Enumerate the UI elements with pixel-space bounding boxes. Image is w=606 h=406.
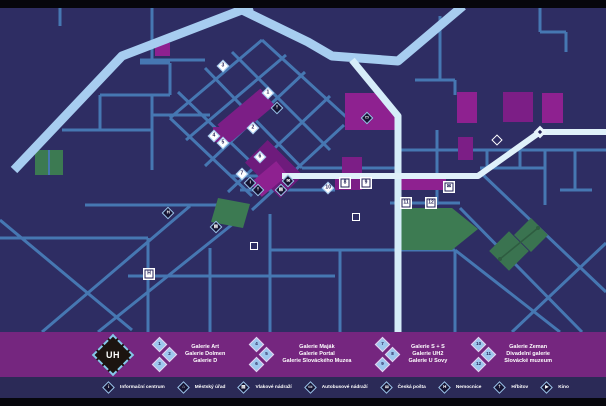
gallery-diamond-number: 5 xyxy=(266,352,269,357)
amenity-label: Městský úřad xyxy=(195,385,226,390)
marker-glyph: ▤ xyxy=(279,188,283,193)
marker-glyph: ▤ xyxy=(214,225,218,230)
amenity-label: Hřbitov xyxy=(511,385,528,390)
map-marker-post-icon[interactable]: ✉ xyxy=(445,183,454,192)
amenity-glyph: ✉ xyxy=(384,385,388,390)
marker-number: 1 xyxy=(267,91,270,96)
gallery-diamond-number: 6 xyxy=(256,362,259,367)
gallery-diamond-number: 3 xyxy=(158,362,161,367)
amenity-glyph: ⌂ xyxy=(182,385,185,390)
legend-group-2: 456Galerie MajákGalerie PortalGalerie Sl… xyxy=(249,338,351,372)
marker-number: 7 xyxy=(241,172,244,177)
marker-number: 10 xyxy=(325,186,331,191)
amenity-glyph: † xyxy=(499,385,502,390)
gallery-diamond-number: 2 xyxy=(168,352,171,357)
marker-number: 8 xyxy=(344,181,347,186)
gallery-diamond-number: 8 xyxy=(392,352,395,357)
gallery-diamond-number: 11 xyxy=(486,352,491,357)
legend-group-3: 789Galerie S + SGalerie UH2Galerie U Sov… xyxy=(375,338,447,372)
map-marker-dout[interactable] xyxy=(491,134,502,145)
amenity-item: ✉Česká pošta xyxy=(382,383,426,392)
amenity-item: ▤Vlakové nádraží xyxy=(239,383,291,392)
marker-glyph: ▭ xyxy=(365,116,369,121)
amenity-glyph: ▶ xyxy=(545,385,548,390)
gallery-label: Galerie Dolmen xyxy=(185,351,225,358)
gallery-diamond-number: 1 xyxy=(158,342,161,347)
map-marker-gallery-5[interactable]: 5 xyxy=(217,137,230,150)
marker-glyph: † xyxy=(276,106,279,111)
legend-group-4: 101112Galerie ZemanDivadelní galerieSlov… xyxy=(471,338,552,372)
train-icon: ▤ xyxy=(238,381,251,394)
map-marker-bus-icon[interactable]: ▭ xyxy=(361,112,374,125)
gallery-label: Galerie Slováckého Muzea xyxy=(282,358,351,365)
gallery-label: Galerie Art xyxy=(185,344,225,351)
map-marker-hospital-icon[interactable]: H xyxy=(162,207,175,220)
post-icon: ✉ xyxy=(380,381,393,394)
map-marker-sout[interactable] xyxy=(250,242,258,250)
marker-number: 9 xyxy=(365,181,368,186)
marker-number: 3 xyxy=(222,64,225,69)
amenity-legend-strip: iInformační centrum⌂Městský úřad▤Vlakové… xyxy=(0,377,606,398)
marker-number: 4 xyxy=(213,134,216,139)
marker-number: 12 xyxy=(428,201,434,206)
legend-group-labels: Galerie S + SGalerie UH2Galerie U Sovy xyxy=(408,344,447,365)
map-marker-gallery-1[interactable]: 1 xyxy=(262,87,275,100)
uh-logo-text: UH xyxy=(106,350,120,360)
gallery-diamond-number: 4 xyxy=(256,342,259,347)
amenity-item: iInformační centrum xyxy=(104,383,165,392)
map-marker-gallery-9[interactable]: 9 xyxy=(362,179,371,188)
legend-group-labels: Galerie ZemanDivadelní galerieSlovácké m… xyxy=(504,344,552,365)
marker-number: 2 xyxy=(252,126,255,131)
map-marker-train-icon[interactable]: ▤ xyxy=(210,221,223,234)
gallery-diamond-number: 7 xyxy=(382,342,385,347)
gallery-label: Galerie Portal xyxy=(282,351,351,358)
gallery-marker-cluster-icon: 123 xyxy=(152,338,178,372)
map-marker-gallery-2[interactable]: 2 xyxy=(247,122,260,135)
marker-number: 11 xyxy=(403,201,408,206)
map-marker-gallery-12[interactable]: 12 xyxy=(427,199,436,208)
amenity-label: Nemocnice xyxy=(456,385,482,390)
gallery-label: Galerie S + S xyxy=(408,344,447,351)
gallery-diamond-2: 2 xyxy=(162,346,178,362)
city-map: 31†2456710i†✉▤▭▤HH89✉1112 xyxy=(0,8,606,332)
marker-glyph: H xyxy=(166,211,169,216)
gallery-diamond-11: 11 xyxy=(481,346,497,362)
marker-number: 5 xyxy=(222,141,225,146)
cemetery-icon: † xyxy=(494,381,507,394)
map-markers-layer: 31†2456710i†✉▤▭▤HH89✉1112 xyxy=(0,8,606,332)
map-marker-gallery-11[interactable]: 11 xyxy=(402,199,411,208)
map-marker-hospital-icon[interactable]: H xyxy=(145,270,154,279)
legend-group-labels: Galerie ArtGalerie DolmenGalerie D xyxy=(185,344,225,365)
bus-icon: ▭ xyxy=(304,381,317,394)
amenity-label: Vlakové nádraží xyxy=(255,385,291,390)
amenity-label: Autobusové nádraží xyxy=(322,385,368,390)
amenity-item: ▶Kino xyxy=(542,383,569,392)
cinema-icon: ▶ xyxy=(540,381,553,394)
marker-glyph: ✉ xyxy=(447,185,451,190)
amenity-glyph: H xyxy=(443,385,446,390)
legend-group-labels: Galerie MajákGalerie PortalGalerie Slová… xyxy=(282,344,351,365)
gallery-label: Galerie Maják xyxy=(282,344,351,351)
gallery-label: Galerie UH2 xyxy=(408,351,447,358)
amenity-label: Informační centrum xyxy=(120,385,165,390)
gallery-label: Galerie U Sovy xyxy=(408,358,447,365)
marker-glyph: ✉ xyxy=(286,179,290,184)
gallery-legend-bar: UH 123Galerie ArtGalerie DolmenGalerie D… xyxy=(0,332,606,377)
gallery-marker-cluster-icon: 101112 xyxy=(471,338,497,372)
map-marker-church-icon[interactable]: † xyxy=(271,102,284,115)
amenity-glyph: i xyxy=(108,385,109,390)
gallery-marker-cluster-icon: 789 xyxy=(375,338,401,372)
amenity-label: Česká pošta xyxy=(398,385,426,390)
map-marker-gallery-3[interactable]: 3 xyxy=(217,60,230,73)
map-marker-gallery-10[interactable]: 10 xyxy=(322,182,335,195)
gallery-diamond-number: 10 xyxy=(476,342,481,347)
map-marker-sout[interactable] xyxy=(352,213,360,221)
info-icon: i xyxy=(102,381,115,394)
marker-glyph: i xyxy=(249,181,250,186)
legend-group-1: 123Galerie ArtGalerie DolmenGalerie D xyxy=(152,338,225,372)
gallery-diamond-5: 5 xyxy=(259,346,275,362)
map-marker-gallery-6[interactable]: 6 xyxy=(254,151,267,164)
gallery-diamond-number: 12 xyxy=(476,362,481,367)
amenity-glyph: ▭ xyxy=(308,385,312,390)
map-marker-djct[interactable] xyxy=(534,126,547,139)
gallery-label: Galerie D xyxy=(185,358,225,365)
town-hall-icon: ⌂ xyxy=(177,381,190,394)
gallery-label: Divadelní galerie xyxy=(504,351,552,358)
uh-logo: UH xyxy=(92,333,134,375)
gallery-marker-cluster-icon: 456 xyxy=(249,338,275,372)
map-marker-gallery-8[interactable]: 8 xyxy=(341,179,350,188)
marker-glyph: H xyxy=(147,272,151,277)
amenity-item: ▭Autobusové nádraží xyxy=(306,383,368,392)
gallery-diamond-number: 9 xyxy=(382,362,385,367)
marker-number: 6 xyxy=(259,155,262,160)
amenity-label: Kino xyxy=(558,385,569,390)
amenity-item: HNemocnice xyxy=(440,383,482,392)
amenity-glyph: ▤ xyxy=(242,385,246,390)
amenity-item: ⌂Městský úřad xyxy=(179,383,226,392)
hospital-icon: H xyxy=(438,381,451,394)
gallery-label: Slovácké muzeum xyxy=(504,358,552,365)
gallery-diamond-8: 8 xyxy=(385,346,401,362)
gallery-label: Galerie Zeman xyxy=(504,344,552,351)
marker-glyph: † xyxy=(257,188,260,193)
amenity-item: †Hřbitov xyxy=(495,383,528,392)
